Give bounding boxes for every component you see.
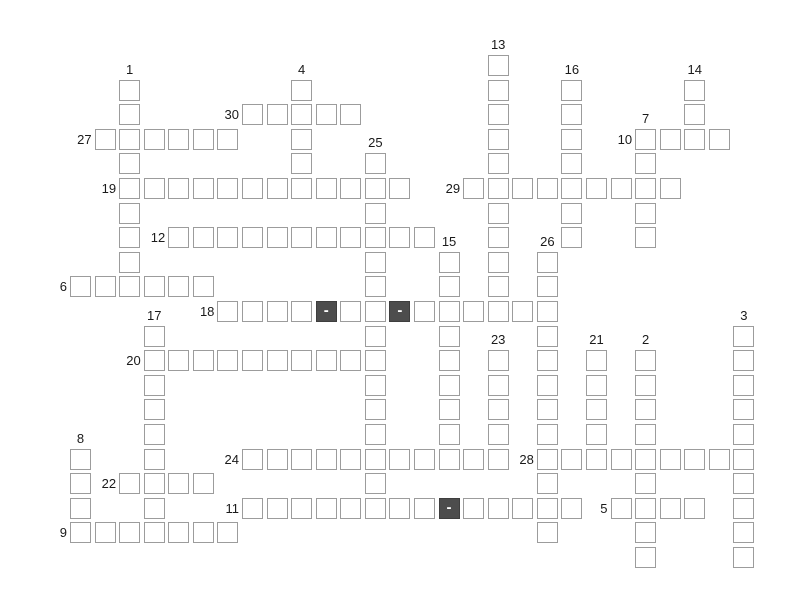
answer-cell[interactable]	[316, 498, 337, 519]
answer-cell[interactable]	[242, 498, 263, 519]
clue-number-label: 16	[557, 62, 587, 77]
answer-cell[interactable]	[463, 301, 484, 322]
answer-cell[interactable]	[414, 301, 435, 322]
answer-cell[interactable]	[733, 498, 754, 519]
answer-cell[interactable]	[365, 473, 386, 494]
answer-cell[interactable]	[635, 153, 656, 174]
answer-cell[interactable]	[95, 522, 116, 543]
answer-cell[interactable]	[340, 104, 361, 125]
answer-cell[interactable]	[119, 227, 140, 248]
answer-cell[interactable]	[291, 498, 312, 519]
answer-cell[interactable]	[488, 350, 509, 371]
answer-cell[interactable]	[635, 178, 656, 199]
answer-cell[interactable]	[635, 350, 656, 371]
answer-cell[interactable]	[242, 449, 263, 470]
answer-cell[interactable]	[365, 227, 386, 248]
answer-cell[interactable]	[144, 399, 165, 420]
clue-number-label: 8	[66, 431, 96, 446]
answer-cell[interactable]	[439, 449, 460, 470]
answer-cell[interactable]	[635, 522, 656, 543]
clue-number-label: 28	[504, 452, 534, 467]
dash-cell: -	[439, 498, 460, 519]
answer-cell[interactable]	[242, 301, 263, 322]
answer-cell[interactable]	[389, 449, 410, 470]
answer-cell[interactable]	[119, 276, 140, 297]
answer-cell[interactable]	[193, 178, 214, 199]
answer-cell[interactable]	[119, 252, 140, 273]
answer-cell[interactable]	[217, 178, 238, 199]
answer-cell[interactable]	[635, 547, 656, 568]
answer-cell[interactable]	[512, 178, 533, 199]
answer-cell[interactable]	[684, 80, 705, 101]
answer-cell[interactable]	[70, 449, 91, 470]
answer-cell[interactable]	[365, 424, 386, 445]
answer-cell[interactable]	[217, 227, 238, 248]
clue-number-label: 14	[680, 62, 710, 77]
answer-cell[interactable]	[217, 129, 238, 150]
answer-cell[interactable]	[635, 203, 656, 224]
answer-cell[interactable]	[119, 473, 140, 494]
answer-cell[interactable]	[340, 449, 361, 470]
answer-cell[interactable]	[635, 399, 656, 420]
answer-cell[interactable]	[439, 399, 460, 420]
answer-cell[interactable]	[537, 350, 558, 371]
answer-cell[interactable]	[144, 449, 165, 470]
clue-number-label: 15	[434, 234, 464, 249]
clue-number-label: 18	[184, 304, 214, 319]
answer-cell[interactable]	[660, 178, 681, 199]
answer-cell[interactable]	[316, 104, 337, 125]
answer-cell[interactable]	[389, 227, 410, 248]
answer-cell[interactable]	[611, 449, 632, 470]
answer-cell[interactable]	[488, 375, 509, 396]
answer-cell[interactable]	[144, 326, 165, 347]
answer-cell[interactable]	[635, 375, 656, 396]
answer-cell[interactable]	[537, 326, 558, 347]
answer-cell[interactable]	[365, 252, 386, 273]
answer-cell[interactable]	[537, 522, 558, 543]
answer-cell[interactable]	[144, 276, 165, 297]
answer-cell[interactable]	[660, 449, 681, 470]
answer-cell[interactable]	[537, 449, 558, 470]
answer-cell[interactable]	[291, 104, 312, 125]
answer-cell[interactable]	[733, 326, 754, 347]
answer-cell[interactable]	[488, 498, 509, 519]
clue-number-label: 20	[111, 353, 141, 368]
answer-cell[interactable]	[365, 399, 386, 420]
answer-cell[interactable]	[684, 449, 705, 470]
answer-cell[interactable]	[463, 498, 484, 519]
answer-cell[interactable]	[144, 522, 165, 543]
answer-cell[interactable]	[217, 522, 238, 543]
answer-cell[interactable]	[365, 153, 386, 174]
clue-number-label: 7	[631, 111, 661, 126]
answer-cell[interactable]	[144, 350, 165, 371]
answer-cell[interactable]	[119, 80, 140, 101]
answer-cell[interactable]	[365, 301, 386, 322]
answer-cell[interactable]	[733, 547, 754, 568]
answer-cell[interactable]	[119, 203, 140, 224]
answer-cell[interactable]	[365, 498, 386, 519]
answer-cell[interactable]	[242, 350, 263, 371]
answer-cell[interactable]	[291, 449, 312, 470]
clue-number-label: 13	[483, 37, 513, 52]
answer-cell[interactable]	[365, 276, 386, 297]
answer-cell[interactable]	[488, 129, 509, 150]
answer-cell[interactable]	[488, 252, 509, 273]
clue-number-label: 26	[532, 234, 562, 249]
answer-cell[interactable]	[660, 498, 681, 519]
clue-number-label: 2	[631, 332, 661, 347]
answer-cell[interactable]	[660, 129, 681, 150]
answer-cell[interactable]	[70, 498, 91, 519]
answer-cell[interactable]	[635, 473, 656, 494]
answer-cell[interactable]	[193, 522, 214, 543]
answer-cell[interactable]	[586, 350, 607, 371]
answer-cell[interactable]	[537, 498, 558, 519]
clue-number-label: 30	[209, 107, 239, 122]
answer-cell[interactable]	[144, 473, 165, 494]
answer-cell[interactable]	[488, 80, 509, 101]
answer-cell[interactable]	[488, 178, 509, 199]
answer-cell[interactable]	[537, 276, 558, 297]
answer-cell[interactable]	[635, 498, 656, 519]
answer-cell[interactable]	[635, 424, 656, 445]
answer-cell[interactable]	[291, 350, 312, 371]
answer-cell[interactable]	[70, 473, 91, 494]
answer-cell[interactable]	[488, 104, 509, 125]
answer-cell[interactable]	[561, 80, 582, 101]
answer-cell[interactable]	[291, 153, 312, 174]
answer-cell[interactable]	[635, 227, 656, 248]
answer-cell[interactable]	[463, 178, 484, 199]
answer-cell[interactable]	[733, 350, 754, 371]
answer-cell[interactable]	[168, 473, 189, 494]
clue-number-label: 4	[287, 62, 317, 77]
answer-cell[interactable]	[340, 498, 361, 519]
answer-cell[interactable]	[144, 375, 165, 396]
answer-cell[interactable]	[488, 55, 509, 76]
answer-cell[interactable]	[70, 276, 91, 297]
answer-cell[interactable]	[488, 203, 509, 224]
answer-cell[interactable]	[733, 522, 754, 543]
answer-cell[interactable]	[488, 424, 509, 445]
answer-cell[interactable]	[365, 350, 386, 371]
answer-cell[interactable]	[733, 375, 754, 396]
answer-cell[interactable]	[611, 178, 632, 199]
answer-cell[interactable]	[144, 424, 165, 445]
answer-cell[interactable]	[561, 178, 582, 199]
answer-cell[interactable]	[365, 375, 386, 396]
answer-cell[interactable]	[439, 301, 460, 322]
answer-cell[interactable]	[488, 153, 509, 174]
crossword-grid: 302710192912618--2024282211-591314161472…	[0, 0, 800, 600]
clue-number-label: 23	[483, 332, 513, 347]
answer-cell[interactable]	[414, 498, 435, 519]
clue-number-label: 25	[360, 135, 390, 150]
answer-cell[interactable]	[193, 473, 214, 494]
clue-number-label: 6	[37, 279, 67, 294]
answer-cell[interactable]	[537, 424, 558, 445]
answer-cell[interactable]	[537, 375, 558, 396]
answer-cell[interactable]	[340, 227, 361, 248]
clue-number-label: 21	[581, 332, 611, 347]
answer-cell[interactable]	[291, 227, 312, 248]
answer-cell[interactable]	[340, 301, 361, 322]
answer-cell[interactable]	[488, 227, 509, 248]
answer-cell[interactable]	[316, 178, 337, 199]
answer-cell[interactable]	[193, 227, 214, 248]
clue-number-label: 17	[139, 308, 169, 323]
clue-number-label: 5	[578, 501, 608, 516]
answer-cell[interactable]	[488, 301, 509, 322]
answer-cell[interactable]	[242, 104, 263, 125]
answer-cell[interactable]	[365, 203, 386, 224]
dash-cell: -	[389, 301, 410, 322]
answer-cell[interactable]	[267, 227, 288, 248]
answer-cell[interactable]	[561, 104, 582, 125]
answer-cell[interactable]	[512, 498, 533, 519]
answer-cell[interactable]	[611, 498, 632, 519]
clue-number-label: 3	[729, 308, 759, 323]
answer-cell[interactable]	[291, 80, 312, 101]
answer-cell[interactable]	[537, 399, 558, 420]
answer-cell[interactable]	[439, 252, 460, 273]
answer-cell[interactable]	[168, 522, 189, 543]
answer-cell[interactable]	[389, 178, 410, 199]
clue-number-label: 19	[86, 181, 116, 196]
answer-cell[interactable]	[439, 375, 460, 396]
answer-cell[interactable]	[586, 375, 607, 396]
clue-number-label: 10	[602, 132, 632, 147]
clue-number-label: 1	[115, 62, 145, 77]
answer-cell[interactable]	[561, 203, 582, 224]
answer-cell[interactable]	[512, 301, 533, 322]
answer-cell[interactable]	[414, 449, 435, 470]
answer-cell[interactable]	[267, 498, 288, 519]
answer-cell[interactable]	[340, 178, 361, 199]
answer-cell[interactable]	[561, 227, 582, 248]
answer-cell[interactable]	[635, 129, 656, 150]
answer-cell[interactable]	[733, 399, 754, 420]
answer-cell[interactable]	[168, 276, 189, 297]
answer-cell[interactable]	[733, 424, 754, 445]
answer-cell[interactable]	[217, 350, 238, 371]
answer-cell[interactable]	[365, 449, 386, 470]
answer-cell[interactable]	[586, 178, 607, 199]
answer-cell[interactable]	[267, 301, 288, 322]
answer-cell[interactable]	[119, 522, 140, 543]
answer-cell[interactable]	[193, 350, 214, 371]
answer-cell[interactable]	[95, 276, 116, 297]
answer-cell[interactable]	[733, 473, 754, 494]
answer-cell[interactable]	[193, 129, 214, 150]
answer-cell[interactable]	[70, 522, 91, 543]
answer-cell[interactable]	[291, 129, 312, 150]
answer-cell[interactable]	[267, 350, 288, 371]
answer-cell[interactable]	[439, 424, 460, 445]
answer-cell[interactable]	[144, 178, 165, 199]
answer-cell[interactable]	[365, 178, 386, 199]
answer-cell[interactable]	[168, 129, 189, 150]
answer-cell[interactable]	[168, 350, 189, 371]
answer-cell[interactable]	[709, 129, 730, 150]
answer-cell[interactable]	[439, 276, 460, 297]
answer-cell[interactable]	[144, 498, 165, 519]
answer-cell[interactable]	[439, 326, 460, 347]
answer-cell[interactable]	[635, 449, 656, 470]
answer-cell[interactable]	[291, 301, 312, 322]
answer-cell[interactable]	[242, 227, 263, 248]
answer-cell[interactable]	[193, 276, 214, 297]
answer-cell[interactable]	[733, 449, 754, 470]
answer-cell[interactable]	[267, 178, 288, 199]
answer-cell[interactable]	[537, 473, 558, 494]
answer-cell[interactable]	[316, 449, 337, 470]
answer-cell[interactable]	[586, 424, 607, 445]
answer-cell[interactable]	[537, 178, 558, 199]
clue-number-label: 9	[37, 525, 67, 540]
answer-cell[interactable]	[488, 399, 509, 420]
answer-cell[interactable]	[119, 104, 140, 125]
answer-cell[interactable]	[144, 129, 165, 150]
answer-cell[interactable]	[217, 301, 238, 322]
answer-cell[interactable]	[168, 227, 189, 248]
answer-cell[interactable]	[537, 301, 558, 322]
answer-cell[interactable]	[684, 104, 705, 125]
answer-cell[interactable]	[267, 449, 288, 470]
answer-cell[interactable]	[586, 449, 607, 470]
answer-cell[interactable]	[119, 129, 140, 150]
clue-number-label: 11	[209, 501, 239, 516]
answer-cell[interactable]	[365, 326, 386, 347]
answer-cell[interactable]	[119, 153, 140, 174]
answer-cell[interactable]	[537, 252, 558, 273]
clue-number-label: 24	[209, 452, 239, 467]
answer-cell[interactable]	[463, 449, 484, 470]
answer-cell[interactable]	[119, 178, 140, 199]
dash-cell: -	[316, 301, 337, 322]
answer-cell[interactable]	[586, 399, 607, 420]
answer-cell[interactable]	[316, 350, 337, 371]
answer-cell[interactable]	[267, 104, 288, 125]
answer-cell[interactable]	[242, 178, 263, 199]
clue-number-label: 27	[62, 132, 92, 147]
answer-cell[interactable]	[439, 350, 460, 371]
answer-cell[interactable]	[684, 129, 705, 150]
answer-cell[interactable]	[414, 227, 435, 248]
answer-cell[interactable]	[291, 178, 312, 199]
answer-cell[interactable]	[561, 449, 582, 470]
answer-cell[interactable]	[684, 498, 705, 519]
answer-cell[interactable]	[389, 498, 410, 519]
answer-cell[interactable]	[561, 129, 582, 150]
answer-cell[interactable]	[95, 129, 116, 150]
answer-cell[interactable]	[340, 350, 361, 371]
answer-cell[interactable]	[488, 276, 509, 297]
answer-cell[interactable]	[561, 153, 582, 174]
answer-cell[interactable]	[709, 449, 730, 470]
answer-cell[interactable]	[316, 227, 337, 248]
answer-cell[interactable]	[168, 178, 189, 199]
clue-number-label: 29	[430, 181, 460, 196]
